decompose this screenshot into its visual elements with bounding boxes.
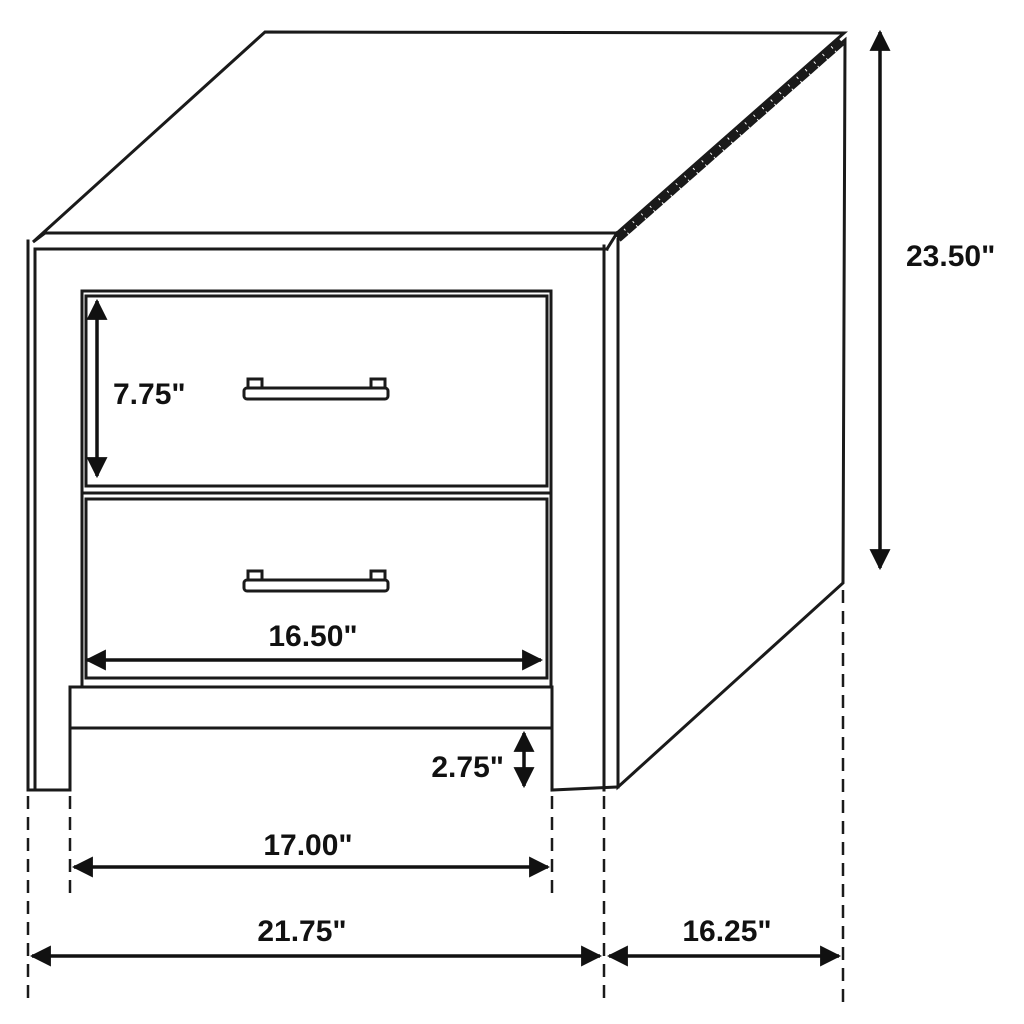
stretcher-rail xyxy=(70,687,552,728)
handle-bar xyxy=(244,388,388,399)
nightstand-drawing xyxy=(28,32,845,790)
top-slab-corner-join xyxy=(607,233,617,249)
height-dimension-label: 23.50" xyxy=(906,240,995,273)
depth-dimension-label: 16.25" xyxy=(682,915,771,948)
leg-clearance-dimension-label: 2.75" xyxy=(431,751,504,784)
right-leg-bottom-edge xyxy=(552,787,618,790)
handle-bar xyxy=(244,580,388,591)
drawer-height-dimension-label: 7.75" xyxy=(113,378,186,411)
drawer-width-dimension-label: 16.50" xyxy=(268,620,357,653)
inner-width-dimension-label: 17.00" xyxy=(263,829,352,862)
nightstand-diagram-canvas: 23.50" 7.75" 16.50" 2.75" 17.00" 21.75" … xyxy=(0,0,1024,1024)
overall-width-dimension-label: 21.75" xyxy=(257,915,346,948)
dimension-diagram: 23.50" 7.75" 16.50" 2.75" 17.00" 21.75" … xyxy=(0,0,1024,1024)
